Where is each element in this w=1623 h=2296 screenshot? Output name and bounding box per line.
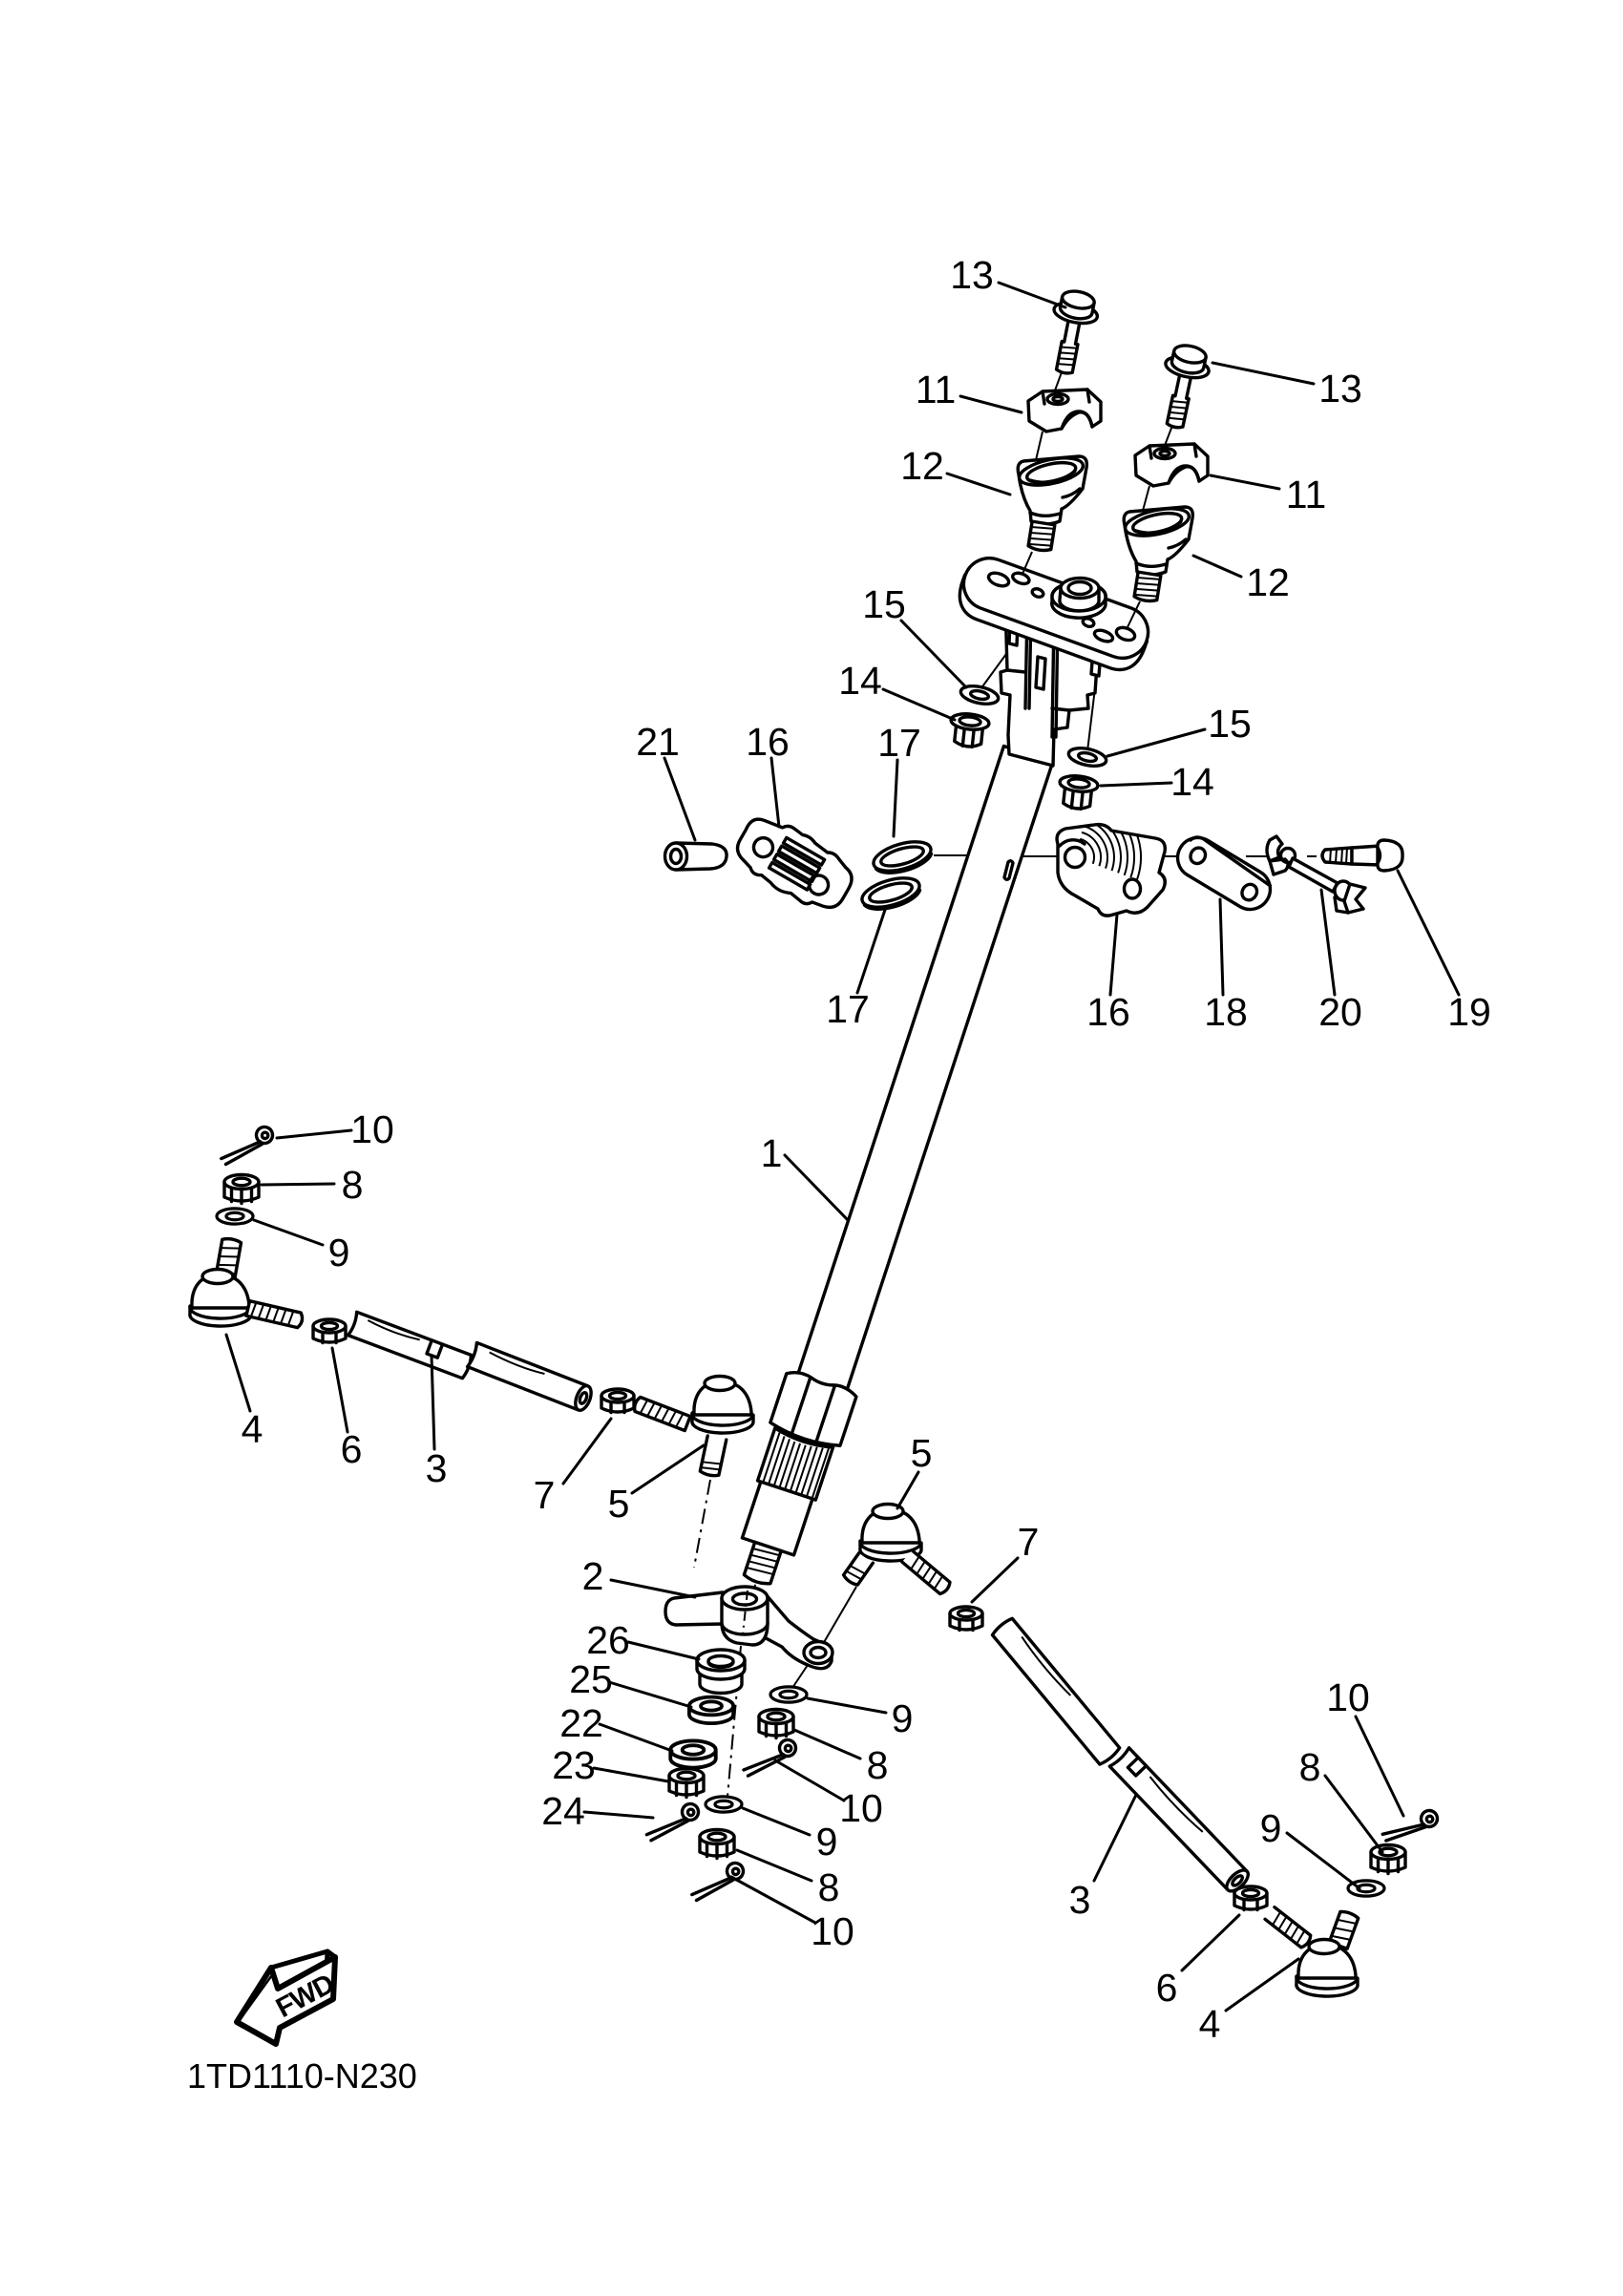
svg-text:10: 10: [350, 1107, 394, 1151]
svg-text:8: 8: [818, 1865, 840, 1909]
svg-text:11: 11: [916, 368, 957, 411]
svg-text:1: 1: [761, 1131, 783, 1175]
svg-text:16: 16: [746, 720, 790, 764]
svg-text:17: 17: [826, 987, 870, 1031]
svg-text:15: 15: [1208, 702, 1252, 746]
svg-text:3: 3: [426, 1446, 448, 1490]
svg-text:14: 14: [838, 659, 882, 703]
svg-text:10: 10: [811, 1909, 854, 1953]
svg-text:7: 7: [1018, 1520, 1040, 1564]
svg-text:18: 18: [1204, 990, 1248, 1034]
svg-text:26: 26: [586, 1618, 630, 1662]
svg-text:25: 25: [569, 1657, 613, 1701]
svg-text:9: 9: [1260, 1806, 1282, 1850]
svg-text:14: 14: [1170, 760, 1214, 804]
svg-text:12: 12: [900, 444, 944, 488]
svg-text:9: 9: [328, 1231, 350, 1274]
svg-text:6: 6: [1156, 1966, 1178, 2010]
svg-text:4: 4: [1199, 2002, 1221, 2046]
svg-text:12: 12: [1246, 560, 1290, 604]
svg-text:13: 13: [1318, 367, 1362, 411]
svg-text:23: 23: [552, 1743, 596, 1787]
svg-text:6: 6: [341, 1427, 363, 1471]
svg-text:22: 22: [559, 1701, 603, 1745]
svg-text:7: 7: [534, 1473, 556, 1517]
svg-text:3: 3: [1069, 1878, 1091, 1922]
svg-text:9: 9: [892, 1696, 914, 1740]
svg-text:8: 8: [1299, 1745, 1321, 1789]
svg-text:10: 10: [1326, 1675, 1370, 1719]
svg-text:4: 4: [242, 1407, 263, 1451]
svg-text:19: 19: [1447, 990, 1491, 1034]
svg-text:10: 10: [839, 1786, 883, 1830]
svg-text:9: 9: [816, 1820, 838, 1864]
svg-text:11: 11: [1286, 473, 1327, 516]
svg-text:15: 15: [862, 582, 906, 626]
svg-text:13: 13: [950, 253, 994, 297]
svg-text:20: 20: [1318, 990, 1362, 1034]
svg-text:5: 5: [608, 1482, 630, 1526]
svg-text:8: 8: [342, 1163, 364, 1207]
svg-text:21: 21: [636, 720, 680, 764]
svg-text:5: 5: [911, 1431, 933, 1475]
svg-text:8: 8: [867, 1743, 889, 1787]
svg-text:2: 2: [582, 1554, 604, 1598]
svg-text:24: 24: [541, 1789, 585, 1833]
svg-text:16: 16: [1086, 990, 1130, 1034]
svg-text:17: 17: [877, 721, 921, 765]
svg-text:1TD1110-N230: 1TD1110-N230: [187, 2056, 417, 2096]
